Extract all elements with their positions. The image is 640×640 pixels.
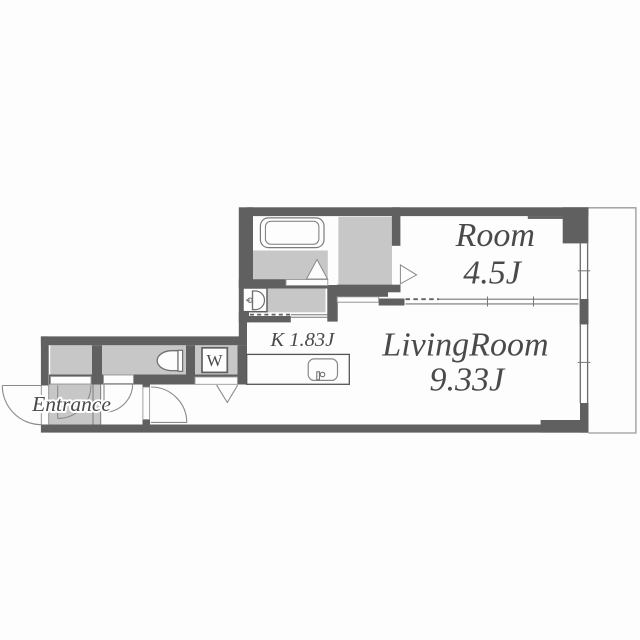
svg-text:W: W	[206, 351, 223, 370]
svg-text:K 1.83J: K 1.83J	[270, 329, 336, 351]
svg-text:Room: Room	[455, 217, 535, 254]
svg-text:Entrance: Entrance	[31, 392, 111, 416]
svg-text:4.5J: 4.5J	[463, 254, 523, 291]
svg-text:LivingRoom: LivingRoom	[381, 326, 548, 363]
svg-text:9.33J: 9.33J	[430, 362, 507, 399]
